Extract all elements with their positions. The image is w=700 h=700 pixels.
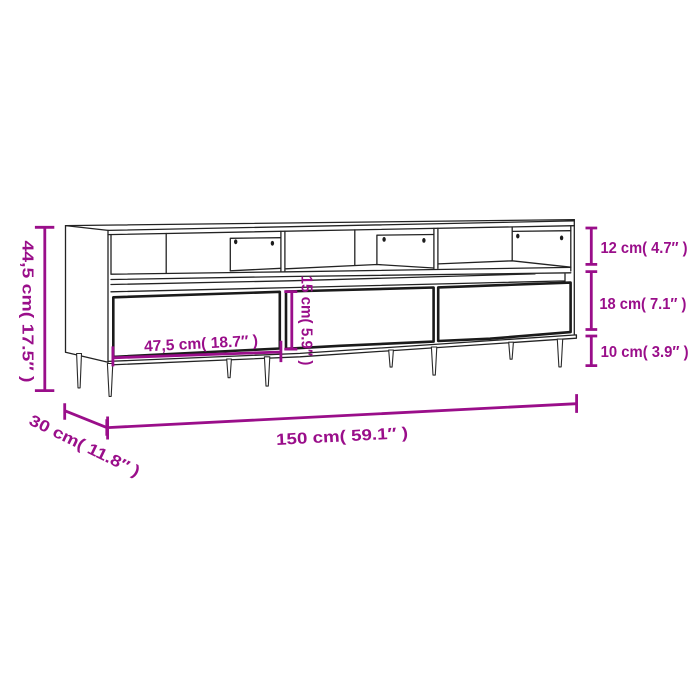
svg-text:44,5 cm( 17.5″ ): 44,5 cm( 17.5″ ): [19, 241, 36, 383]
svg-text:12 cm( 4.7″ ): 12 cm( 4.7″ ): [601, 240, 688, 257]
svg-text:18 cm( 7.1″ ): 18 cm( 7.1″ ): [599, 296, 686, 313]
svg-text:15 cm( 5.9″ ): 15 cm( 5.9″ ): [298, 276, 315, 366]
svg-text:10 cm( 3.9″ ): 10 cm( 3.9″ ): [601, 344, 689, 361]
